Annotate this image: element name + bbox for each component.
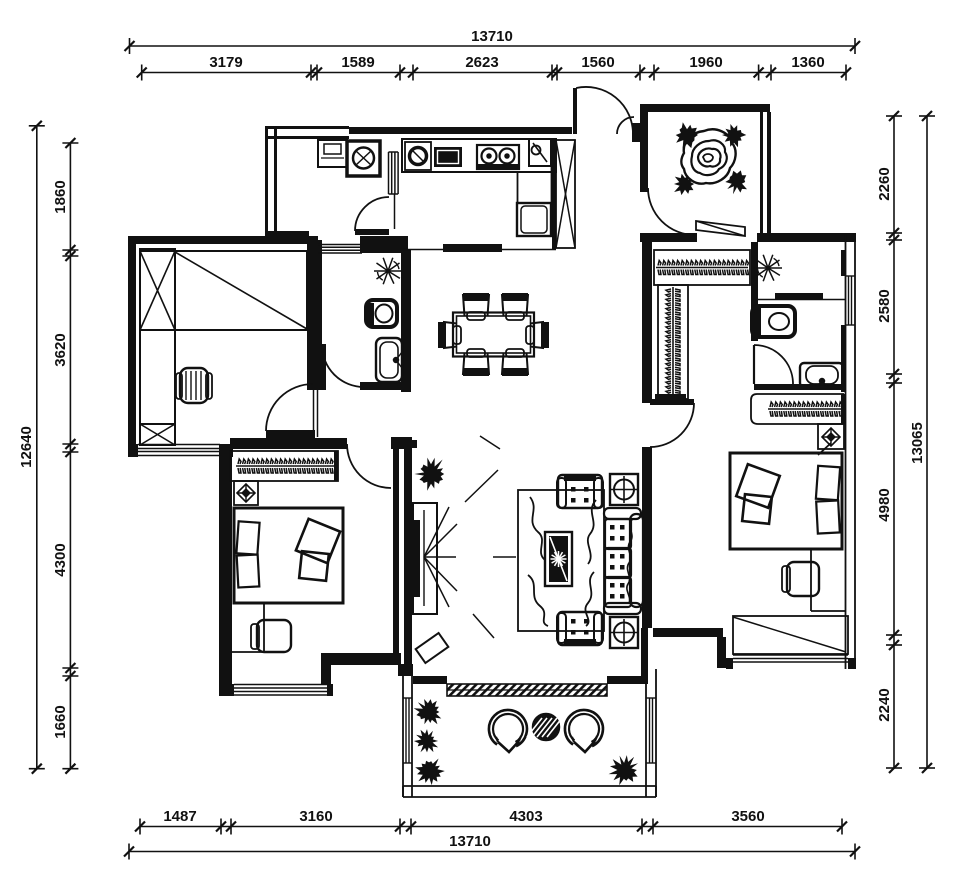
svg-text:4300: 4300: [52, 543, 69, 576]
svg-text:1660: 1660: [52, 705, 69, 738]
svg-text:12640: 12640: [18, 426, 35, 468]
svg-text:1589: 1589: [341, 54, 374, 71]
svg-text:13710: 13710: [449, 833, 491, 850]
svg-text:1487: 1487: [163, 808, 196, 825]
svg-text:2580: 2580: [876, 289, 893, 322]
svg-text:4303: 4303: [509, 808, 542, 825]
svg-text:3160: 3160: [299, 808, 332, 825]
svg-text:13710: 13710: [471, 28, 513, 45]
svg-text:3560: 3560: [731, 808, 764, 825]
svg-text:2260: 2260: [876, 167, 893, 200]
svg-text:1860: 1860: [52, 180, 69, 213]
svg-text:13065: 13065: [909, 422, 926, 464]
svg-text:1560: 1560: [581, 54, 614, 71]
svg-text:2240: 2240: [876, 688, 893, 721]
svg-text:3620: 3620: [52, 333, 69, 366]
svg-text:3179: 3179: [209, 54, 242, 71]
svg-text:2623: 2623: [465, 54, 498, 71]
svg-text:1360: 1360: [791, 54, 824, 71]
svg-text:4980: 4980: [876, 488, 893, 521]
svg-text:1960: 1960: [689, 54, 722, 71]
